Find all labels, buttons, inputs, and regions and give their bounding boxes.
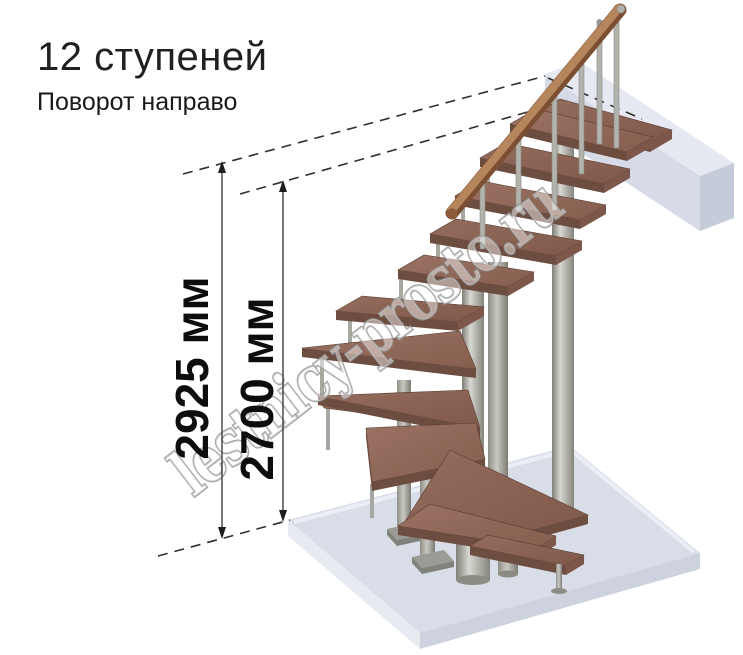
watermark-text: lestnicy-prosto.ru: [157, 165, 576, 511]
baluster: [614, 8, 619, 148]
dimension-2700: 2700 мм: [231, 180, 287, 522]
watermark: lestnicy-prosto.ru: [157, 165, 576, 511]
handrail-end-cap: [447, 209, 458, 220]
arrowhead-down: [279, 510, 287, 522]
handrail-top-cap: [617, 5, 625, 13]
dimension-label-2700: 2700 мм: [231, 297, 283, 480]
dimension-label-2925: 2925 мм: [166, 276, 218, 459]
first-step-leg: [556, 564, 562, 590]
staircase-illustration: lestnicy-prosto.ru 2925 мм 2700 мм: [0, 0, 743, 655]
baluster: [579, 58, 584, 174]
staircase-diagram-page: 12 ступеней Поворот направо: [0, 0, 743, 655]
baluster: [552, 92, 557, 210]
extension-line-floor: [158, 520, 290, 556]
first-step-leg-plate: [551, 588, 567, 594]
